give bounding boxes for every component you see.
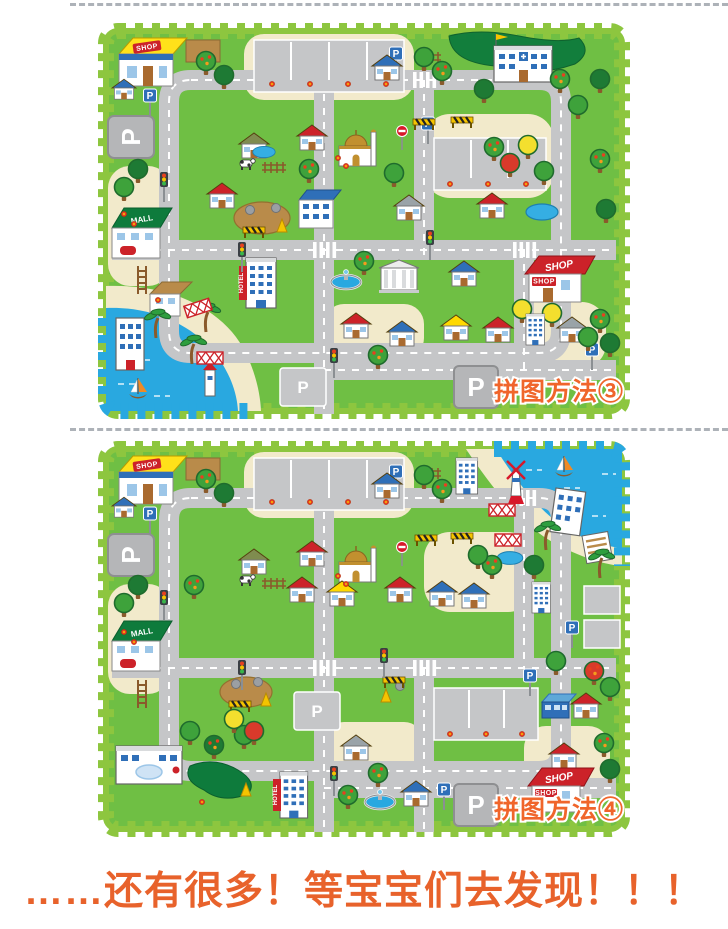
svg-text:P: P	[116, 546, 146, 563]
pond-small	[253, 146, 275, 157]
beach-house	[582, 531, 612, 563]
pond	[526, 204, 558, 220]
svg-text:P: P	[441, 785, 448, 796]
svg-text:P: P	[116, 128, 146, 145]
red-bridge	[495, 534, 521, 546]
play-mat-2: P P P P P P	[94, 436, 634, 842]
svg-text:P: P	[467, 790, 484, 820]
school-building	[116, 746, 182, 784]
parking-square-center: P	[294, 692, 340, 730]
parking-square-left: P	[108, 534, 154, 576]
red-bridge	[489, 504, 515, 516]
parking-lot-bottom-small: P	[280, 368, 326, 406]
parking-panel-bottom-right: P	[454, 784, 498, 826]
svg-text:P: P	[569, 623, 576, 634]
parking-lot-center-right	[434, 688, 538, 740]
svg-text:P: P	[297, 378, 308, 397]
product-image: P P P P P P	[0, 0, 728, 929]
svg-text:P: P	[147, 91, 154, 102]
svg-text:P: P	[311, 702, 322, 721]
svg-text:P: P	[527, 671, 534, 682]
mat-label: 拼图方法④	[494, 795, 624, 824]
apartment-small	[526, 314, 545, 345]
svg-text:P: P	[393, 49, 400, 60]
mat-label: 拼图方法③	[494, 377, 624, 406]
svg-text:HOTEL: HOTEL	[239, 273, 245, 294]
office-building-white	[532, 582, 551, 613]
svg-text:HOTEL: HOTEL	[273, 785, 279, 806]
svg-text:SHOP: SHOP	[533, 279, 555, 286]
dashed-separator-top	[70, 3, 728, 6]
red-bridge	[197, 352, 223, 364]
parking-square-left: P	[108, 116, 154, 158]
svg-text:P: P	[147, 509, 154, 520]
parking-panel-bottom-right: P	[454, 366, 498, 408]
dashed-separator-middle	[70, 428, 728, 431]
slogan-text: ……还有很多！等宝宝们去发现！！！	[0, 860, 728, 916]
svg-text:P: P	[467, 372, 484, 402]
svg-text:P: P	[393, 467, 400, 478]
play-mat-1: P P P P P P	[94, 18, 634, 424]
tower-narrow	[456, 458, 478, 494]
